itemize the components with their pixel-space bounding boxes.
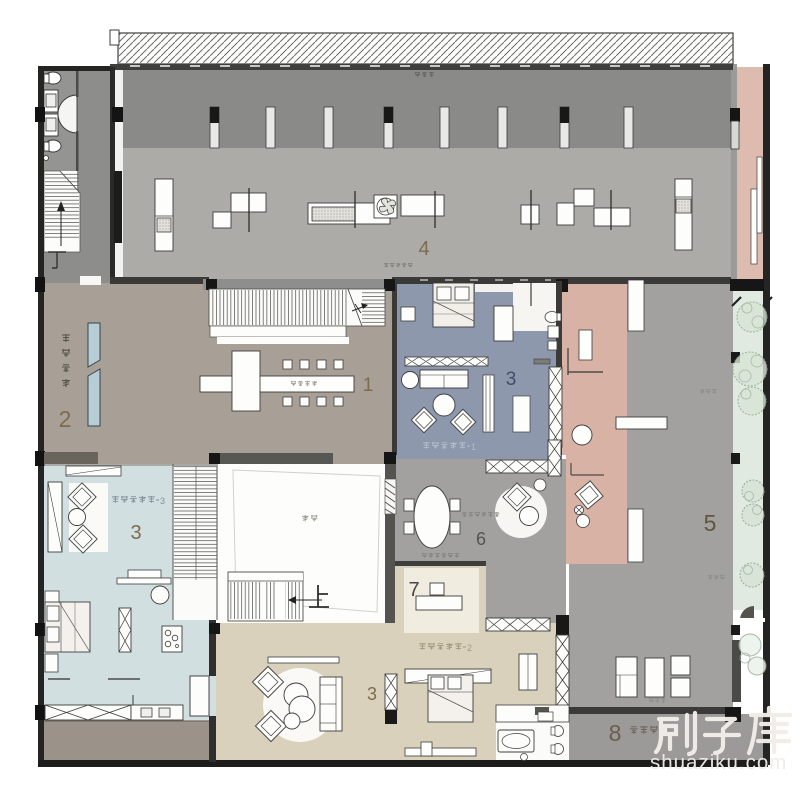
svg-text:8: 8	[609, 720, 622, 746]
svg-text:shuaziku.com: shuaziku.com	[650, 751, 787, 774]
svg-text:1: 1	[471, 442, 476, 452]
svg-text:4: 4	[418, 238, 429, 260]
svg-text:3: 3	[130, 522, 141, 544]
svg-text:3: 3	[506, 369, 517, 390]
svg-text:6: 6	[476, 529, 486, 549]
svg-text:2: 2	[467, 643, 472, 653]
svg-text:3: 3	[367, 684, 377, 704]
svg-text:7: 7	[408, 579, 419, 601]
svg-text:2: 2	[59, 406, 72, 432]
svg-text:3: 3	[160, 496, 165, 506]
svg-text:1: 1	[363, 375, 374, 396]
svg-text:5: 5	[704, 510, 717, 536]
